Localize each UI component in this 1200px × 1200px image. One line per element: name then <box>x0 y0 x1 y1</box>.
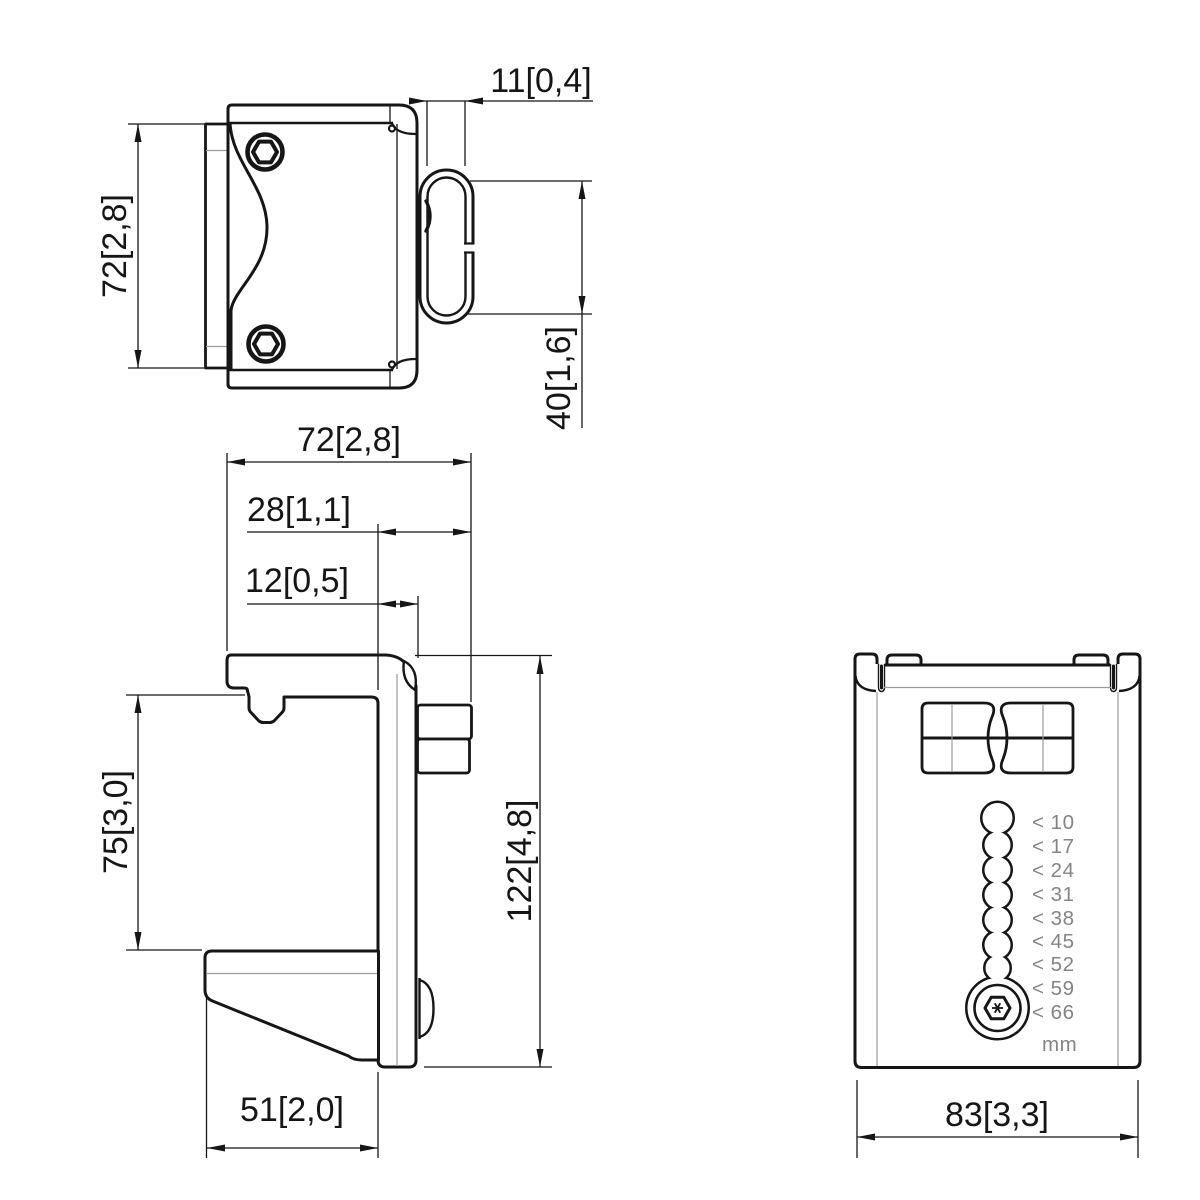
front-view-drawing <box>206 105 476 388</box>
strap-block-profile <box>418 705 472 773</box>
scale-label: < 66 <box>1032 1001 1074 1024</box>
strap-loop <box>420 170 475 323</box>
dim-label-foot-depth: 51[2,0] <box>240 1091 344 1129</box>
scale-label: < 31 <box>1032 883 1074 906</box>
dim-label-hook-inset: 28[1,1] <box>247 491 351 529</box>
dim-label-total-height: 122[4,8] <box>501 800 539 923</box>
scale-label: < 52 <box>1032 953 1074 976</box>
arrow-icon <box>227 459 245 466</box>
dim-label-plate-thickness: 12[0,5] <box>245 562 349 600</box>
arrow-icon <box>537 1049 544 1067</box>
hex-socket-icon <box>254 334 278 355</box>
arrow-icon <box>135 932 142 950</box>
technical-drawing-canvas: 11[0,4] 72[2,8] 40[1,6] <box>0 0 1200 1200</box>
arrow-icon <box>400 601 418 608</box>
arrow-icon <box>579 181 586 199</box>
dim-label-opening-height: 75[3,0] <box>97 770 135 874</box>
thickness-scale: < 10 < 17 < 24 < 31 < 38 < 45 < 52 < 59 … <box>1032 811 1077 1056</box>
arrow-icon <box>360 1145 378 1152</box>
arrow-icon <box>135 124 142 142</box>
scale-label: < 38 <box>1032 907 1074 930</box>
dim-opening-height: 75[3,0] <box>97 695 245 950</box>
scale-unit-label: mm <box>1042 1033 1077 1056</box>
dim-label-depth: 72[2,8] <box>297 421 401 459</box>
foot-wedge <box>205 951 379 1060</box>
dim-label-rear-width: 83[3,3] <box>945 1096 1049 1134</box>
hex-screw-top <box>248 135 283 170</box>
arrow-icon <box>378 601 396 608</box>
dim-loop-height: 40[1,6] <box>467 181 592 430</box>
arrow-icon <box>857 1134 875 1141</box>
dim-label-loop-height: 40[1,6] <box>540 326 578 430</box>
arrow-icon <box>1120 1134 1138 1141</box>
drawing-page: 11[0,4] 72[2,8] 40[1,6] <box>0 0 1200 1200</box>
dim-front-height: 72[2,8] <box>96 124 204 368</box>
scale-label: < 45 <box>1032 930 1074 953</box>
arrow-icon <box>378 529 396 536</box>
scale-label: < 59 <box>1032 977 1074 1000</box>
arrow-icon <box>135 350 142 368</box>
arrow-icon <box>579 296 586 314</box>
arrow-icon <box>453 529 471 536</box>
arrow-icon <box>409 98 427 105</box>
dim-loop-offset: 11[0,4] <box>409 62 593 166</box>
dim-plate-thickness: 12[0,5] <box>245 562 418 658</box>
side-view-drawing <box>205 655 472 1067</box>
hex-socket-icon <box>253 142 277 163</box>
arrow-icon <box>465 98 483 105</box>
arrow-icon <box>537 656 544 674</box>
scale-label: < 10 <box>1032 811 1074 834</box>
dim-rear-width: 83[3,3] <box>857 1080 1138 1158</box>
clamp-knob-profile <box>420 978 434 1039</box>
hex-screw-bottom <box>249 327 284 362</box>
arrow-icon <box>135 695 142 713</box>
rear-view-drawing: < 10 < 17 < 24 < 31 < 38 < 45 < 52 < 59 … <box>855 654 1140 1068</box>
clamp-jaw-strip <box>206 124 229 368</box>
arrow-icon <box>207 1145 225 1152</box>
scale-label: < 17 <box>1032 835 1074 858</box>
arrow-icon <box>453 459 471 466</box>
dim-label-front-height: 72[2,8] <box>96 194 134 298</box>
scale-label: < 24 <box>1032 859 1074 882</box>
dim-label-loop-offset: 11[0,4] <box>490 62 591 100</box>
